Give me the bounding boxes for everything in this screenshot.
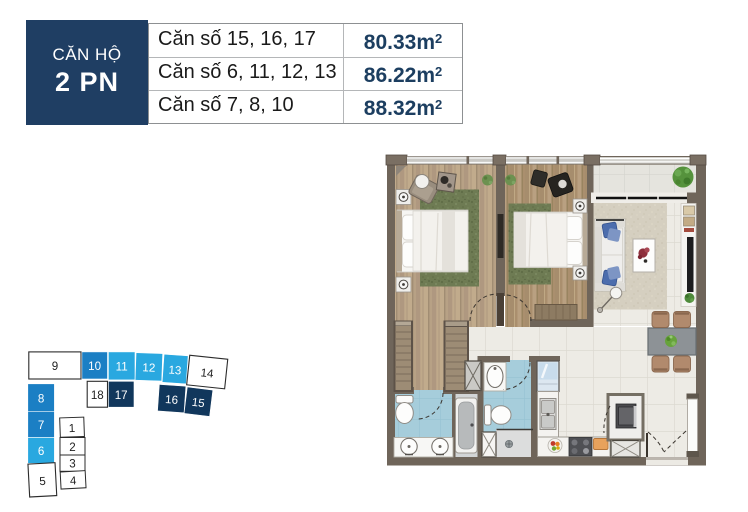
svg-text:14: 14 — [200, 366, 215, 380]
svg-text:16: 16 — [165, 393, 179, 407]
svg-text:4: 4 — [70, 474, 78, 487]
svg-text:12: 12 — [142, 361, 155, 374]
svg-text:17: 17 — [115, 389, 128, 402]
svg-text:13: 13 — [168, 364, 182, 378]
svg-text:8: 8 — [38, 393, 44, 406]
svg-text:15: 15 — [191, 396, 205, 410]
svg-text:3: 3 — [69, 458, 75, 471]
svg-text:18: 18 — [91, 389, 104, 402]
svg-text:2: 2 — [69, 441, 75, 454]
svg-text:10: 10 — [88, 360, 101, 373]
svg-text:7: 7 — [38, 419, 44, 432]
svg-text:9: 9 — [52, 360, 58, 373]
svg-text:5: 5 — [39, 475, 46, 488]
svg-text:1: 1 — [69, 422, 76, 435]
svg-text:6: 6 — [38, 445, 44, 458]
svg-text:11: 11 — [116, 361, 128, 374]
